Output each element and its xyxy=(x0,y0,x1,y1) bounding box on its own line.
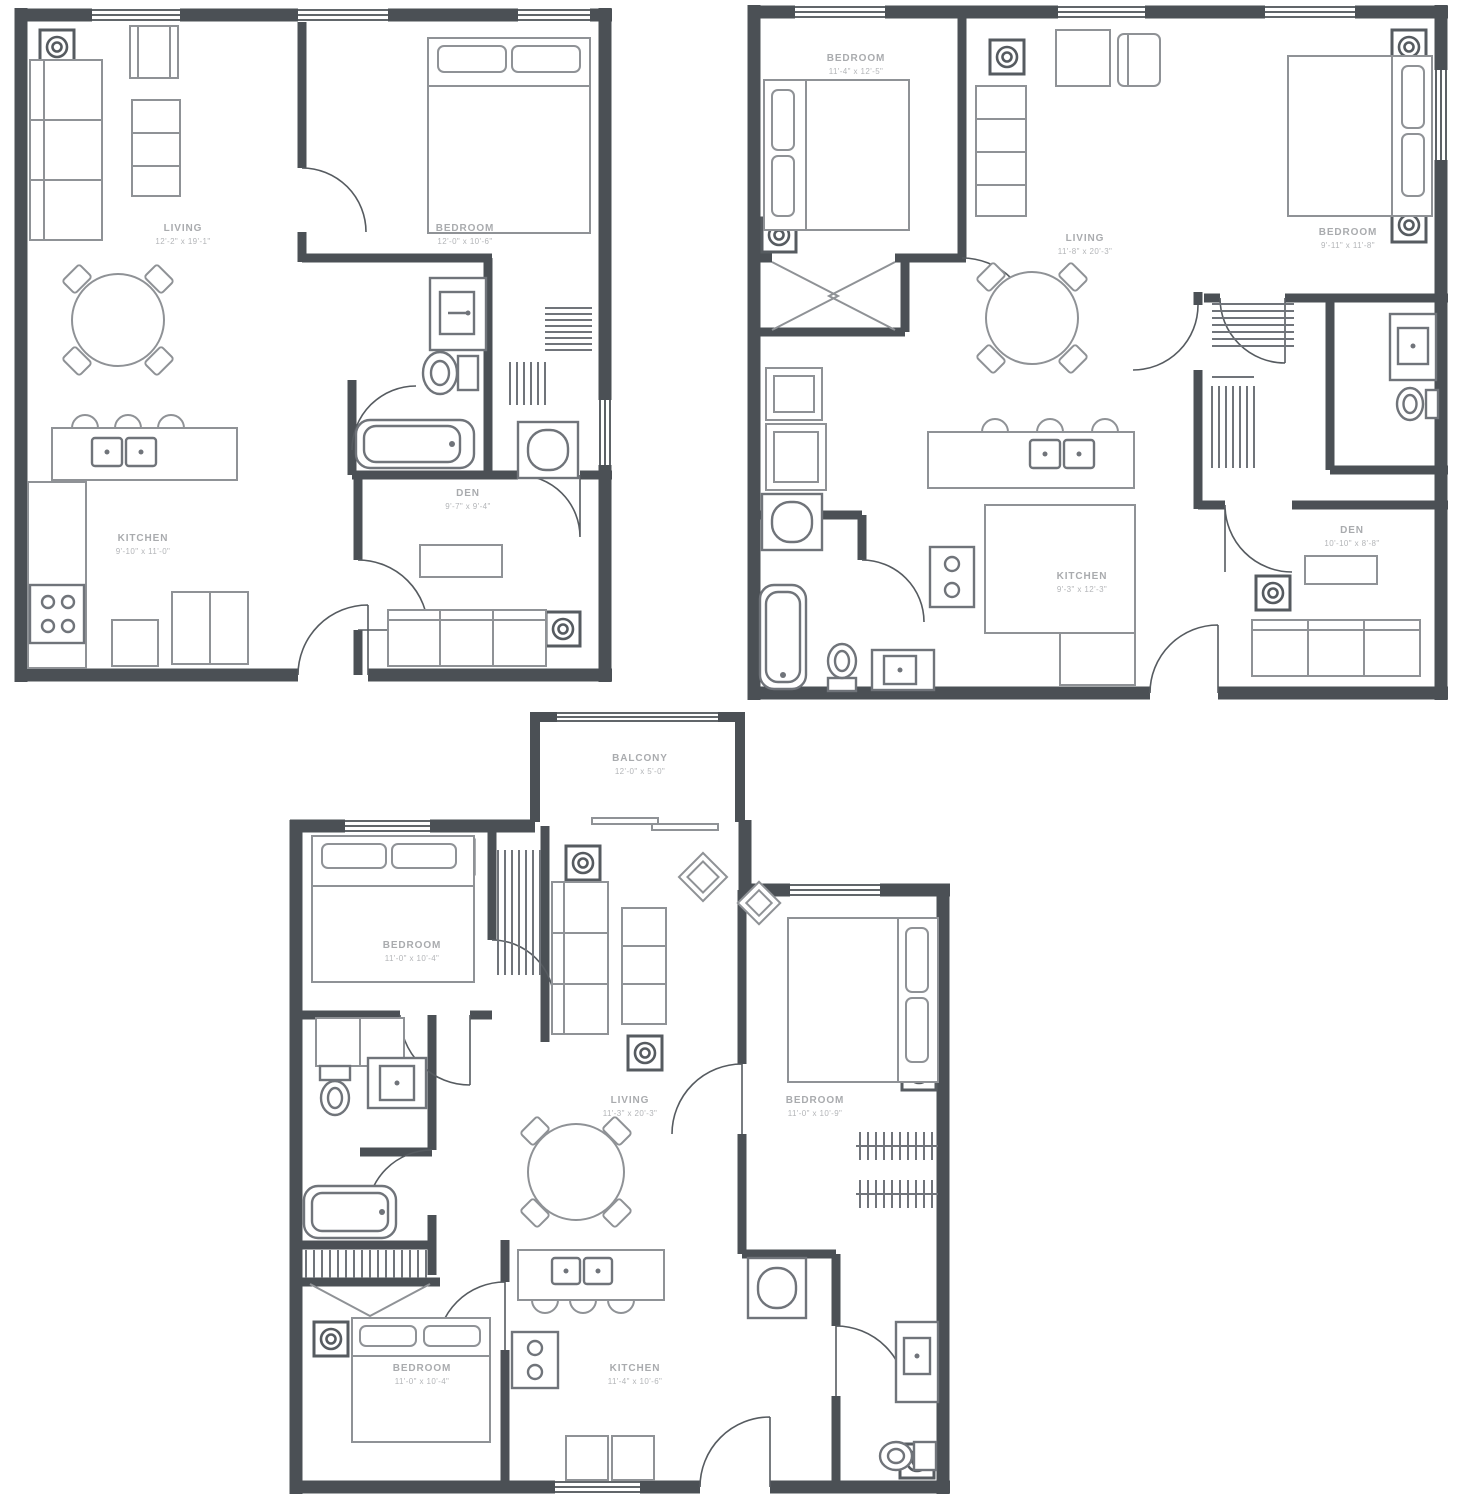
room-dims: 9'-7" x 9'-4" xyxy=(445,502,491,511)
side-table-icon xyxy=(1056,30,1110,86)
bed-icon xyxy=(428,38,590,233)
closet-hatch xyxy=(510,308,592,405)
kitchen-counter-icon xyxy=(28,482,86,668)
ceiling-light-icon xyxy=(628,1036,662,1070)
bathtub-icon xyxy=(760,585,806,689)
washer-icon xyxy=(762,494,822,550)
floor-plan-unit-b: BEDROOM 11'-4" x 12'-5" LIVING 11'-8" x … xyxy=(748,5,1448,700)
bookcase-icon xyxy=(976,86,1026,216)
closet-bifold-doors xyxy=(310,1284,430,1316)
ceiling-light-icon xyxy=(1256,576,1290,610)
room-label: KITCHEN xyxy=(610,1363,661,1374)
dining-table-icon xyxy=(976,262,1088,374)
floorplans-drawing: LIVING 12'-2" x 19'-1" BEDROOM 12'-0" x … xyxy=(0,0,1458,1502)
sofa-icon xyxy=(1252,620,1420,676)
toilet-icon xyxy=(423,352,478,394)
closet-hatch xyxy=(1212,304,1294,468)
dining-table-icon xyxy=(520,1116,632,1228)
washer-icon xyxy=(748,1258,806,1318)
desk-icon xyxy=(1305,556,1377,584)
sliding-door xyxy=(592,818,658,824)
room-dims: 10'-10" x 8'-8" xyxy=(1324,539,1379,548)
floorplan-sheet: LIVING 12'-2" x 19'-1" BEDROOM 12'-0" x … xyxy=(0,0,1458,1502)
sofa-icon xyxy=(30,60,102,240)
kitchen-island-icon xyxy=(928,419,1134,488)
room-label: BEDROOM xyxy=(1319,227,1378,238)
ceiling-light-icon xyxy=(990,40,1024,74)
console-table-icon xyxy=(622,908,666,1024)
room-dims: 12'-0" x 5'-0" xyxy=(615,767,665,776)
kitchen-counter-icon xyxy=(930,505,1135,685)
dresser-icon xyxy=(766,368,826,490)
room-dims: 9'-3" x 12'-3" xyxy=(1057,585,1107,594)
side-table-icon xyxy=(130,26,178,78)
vanity-sink-icon xyxy=(896,1322,938,1402)
sofa-icon xyxy=(388,610,546,666)
toilet-icon xyxy=(828,644,856,691)
sliding-door xyxy=(652,824,718,830)
toilet-icon xyxy=(880,1442,936,1470)
bed-icon xyxy=(764,80,909,230)
floor-plan-unit-a: LIVING 12'-2" x 19'-1" BEDROOM 12'-0" x … xyxy=(15,8,612,682)
closet-bifold-doors xyxy=(772,262,895,330)
ceiling-light-icon xyxy=(566,846,600,880)
room-label: KITCHEN xyxy=(118,533,169,544)
bed-icon xyxy=(1288,56,1432,216)
room-dims: 11'-4" x 10'-6" xyxy=(608,1377,663,1386)
room-label: BEDROOM xyxy=(786,1095,845,1106)
room-label: KITCHEN xyxy=(1057,571,1108,582)
washer-icon xyxy=(518,422,578,478)
room-label: BALCONY xyxy=(612,753,668,764)
room-dims: 11'-4" x 12'-5" xyxy=(829,67,884,76)
room-label: LIVING xyxy=(164,223,203,234)
rug-icon xyxy=(679,853,727,901)
refrigerator-icon xyxy=(172,592,248,664)
closet-hatch xyxy=(306,1250,426,1278)
room-dims: 9'-11" x 11'-8" xyxy=(1321,241,1375,250)
closet-hatch xyxy=(498,850,540,975)
toilet-icon xyxy=(1397,388,1438,420)
ceiling-light-icon xyxy=(314,1322,348,1356)
ceiling-light-icon xyxy=(546,612,580,646)
floor-plan-unit-c: BALCONY 12'-0" x 5'-0" BEDROOM 11'-0" x … xyxy=(290,712,950,1494)
cabinet-icon xyxy=(112,620,158,666)
cabinet-icon xyxy=(566,1436,654,1480)
vanity-sink-icon xyxy=(368,1058,426,1108)
room-dims: 11'-0" x 10'-9" xyxy=(788,1109,843,1118)
room-dims: 11'-8" x 20'-3" xyxy=(1058,247,1113,256)
room-label: BEDROOM xyxy=(393,1363,452,1374)
console-table-icon xyxy=(132,100,180,196)
armchair-icon xyxy=(1118,34,1160,86)
room-label: DEN xyxy=(1340,525,1364,536)
toilet-icon xyxy=(320,1066,350,1115)
dining-table-icon xyxy=(62,264,174,376)
vanity-sink-icon xyxy=(872,650,934,690)
bathtub-icon xyxy=(356,420,474,468)
vanity-sink-icon xyxy=(1390,314,1436,380)
ceiling-light-icon xyxy=(40,30,74,64)
room-dims: 11'-0" x 10'-4" xyxy=(395,1377,450,1386)
vanity-sink-icon xyxy=(430,278,486,350)
room-label: BEDROOM xyxy=(436,223,495,234)
room-label: BEDROOM xyxy=(383,940,442,951)
room-label: DEN xyxy=(456,488,480,499)
room-dims: 11'-3" x 20'-3" xyxy=(603,1109,658,1118)
room-dims: 12'-2" x 19'-1" xyxy=(155,237,210,246)
bed-icon xyxy=(788,918,938,1082)
kitchen-island-icon xyxy=(52,415,237,480)
closet-hatch xyxy=(856,1132,938,1208)
kitchen-island-icon xyxy=(518,1250,664,1313)
bathtub-icon xyxy=(304,1186,396,1238)
sofa-icon xyxy=(552,882,608,1034)
room-label: LIVING xyxy=(1066,233,1105,244)
range-icon xyxy=(512,1332,558,1388)
room-label: BEDROOM xyxy=(827,53,886,64)
room-label: LIVING xyxy=(611,1095,650,1106)
desk-icon xyxy=(420,545,502,577)
room-dims: 9'-10" x 11'-0" xyxy=(116,547,171,556)
room-dims: 11'-0" x 10'-4" xyxy=(385,954,440,963)
room-dims: 12'-0" x 10'-6" xyxy=(437,237,492,246)
